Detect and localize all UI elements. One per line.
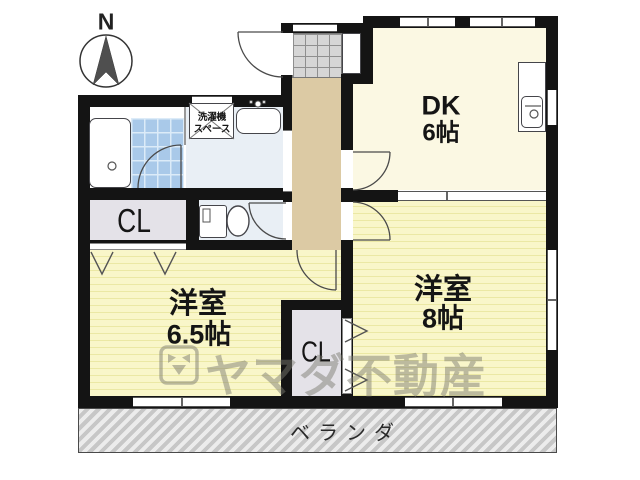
dk-room-size: 6帖	[422, 113, 459, 148]
west8-door-arc	[353, 202, 390, 240]
floor-plan: N DK 6帖 洋室 8帖 洋室 6.5帖 CL CL 洗濯機 スペース ベラン…	[0, 0, 640, 480]
laundry-label-line2: スペース	[194, 121, 231, 135]
west65-room-size: 6.5帖	[167, 313, 232, 352]
veranda-label: ベランダ	[290, 417, 402, 446]
entrance-door-arc	[238, 32, 283, 77]
compass-n-label: N	[98, 9, 115, 36]
toilet-button	[203, 209, 210, 222]
dk-door-arc	[353, 152, 390, 190]
closet-center-bifold-marks	[345, 320, 367, 391]
kitchen-faucet-icon	[525, 106, 541, 118]
washbasin-faucet-icon	[250, 101, 266, 108]
closet-left-bifold-marks	[91, 252, 176, 274]
plan-line-overlay	[0, 0, 640, 480]
compass	[80, 35, 132, 87]
west65-door-arc	[297, 250, 336, 290]
west8-room-size: 8帖	[422, 297, 464, 336]
closet-left-label: CL	[117, 202, 151, 240]
toilet-bowl	[227, 206, 249, 236]
bathtub-drain	[108, 162, 116, 170]
closet-center-label: CL	[301, 337, 331, 370]
toilet-door-arc	[249, 203, 286, 239]
north-arrow-icon	[93, 36, 119, 85]
bathroom-door-arc	[138, 145, 181, 188]
